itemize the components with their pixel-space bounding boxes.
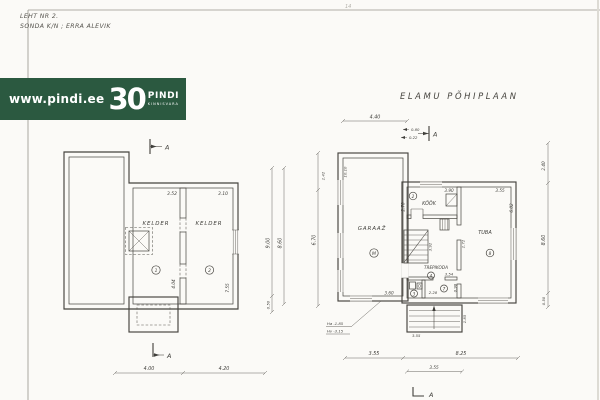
dim-label: 2.40 xyxy=(541,161,546,171)
dim-label: 1.72 xyxy=(461,239,466,248)
level-label: Ha -1.85 xyxy=(327,321,344,326)
main-right-dimline: 2.40 8.60 0.50 xyxy=(541,141,550,309)
room-label: KÖÖK xyxy=(422,200,437,207)
banner-brand-sub: KINNISVARA xyxy=(148,103,179,107)
sheet-note-1: LEHT NR 2. xyxy=(20,13,59,20)
garage-door-opening xyxy=(402,263,409,278)
room-number: 7 xyxy=(443,286,446,291)
section-label: A xyxy=(428,391,433,399)
dim-label: 3.92 xyxy=(428,242,433,251)
dim-label: 3.55 xyxy=(429,365,439,370)
dim-label: 4.04 xyxy=(171,279,176,289)
room-label: KELDER xyxy=(195,221,222,227)
dim-label: 7.55 xyxy=(225,283,230,293)
vertical-dim-chains: 9.00 0.50 8.60 6.70 1.42 xyxy=(266,151,326,314)
room-label: KELDER xyxy=(142,221,169,227)
chimney xyxy=(126,228,153,255)
boiler-icon xyxy=(440,219,449,230)
main-floor-plan: GARAAŽ M KÖÖK 2 TUBA 8 TREPIKODA A 3 7 3… xyxy=(326,115,550,400)
basement-bottom-dimline: 4.00 4.20 xyxy=(113,366,267,375)
sheet-corner-mark: 14 xyxy=(345,4,351,10)
dim-label: 8.60 xyxy=(541,235,547,246)
sheet-note-2: SONDA K/N ; ERRA ALEVIK xyxy=(20,23,111,30)
basement-plan: KELDER KELDER 1 2 3.52 3.10 4.04 7.55 4.… xyxy=(64,139,267,375)
dim-label: 6.70 xyxy=(312,235,318,246)
section-marker-main-bottom: A xyxy=(413,387,433,399)
dim-label: 0.22 xyxy=(409,135,418,140)
dim-label: 0.50 xyxy=(541,296,546,305)
section-label: A xyxy=(164,144,169,152)
dim-label: 4.00 xyxy=(144,366,155,372)
pindi-watermark-banner: www.pindi.ee 30 PINDI KINNISVARA xyxy=(0,78,186,120)
section-label: A xyxy=(166,352,171,360)
basement-window xyxy=(232,230,239,254)
dim-label: 3.54 xyxy=(445,272,454,277)
level-annotation: Ha -1.85 Hv -3.15 xyxy=(326,301,381,334)
wc-fixtures xyxy=(410,282,423,289)
main-top-dimline: 4.40 0.80 0.22 xyxy=(341,115,420,141)
dim-label: 3.10 xyxy=(218,191,228,197)
dim-label: 10.10 xyxy=(343,166,348,177)
section-marker-basement-top: A xyxy=(150,139,169,154)
basement-porch xyxy=(129,297,178,332)
dim-label: 2.70 xyxy=(401,202,406,212)
banner-brand: PINDI xyxy=(148,92,179,101)
dim-label: 4.20 xyxy=(219,366,230,372)
dim-label: 3.55 xyxy=(369,351,380,357)
dim-label: 3.90 xyxy=(444,188,454,193)
banner-url: www.pindi.ee xyxy=(9,92,104,106)
room-number: 3 xyxy=(413,291,416,296)
dim-label: 1.85 xyxy=(462,314,467,323)
section-marker-main-top: A xyxy=(418,126,437,141)
room-number: 2 xyxy=(208,268,211,274)
floorplan-sheet: LEHT NR 2. SONDA K/N ; ERRA ALEVIK 14 EL… xyxy=(0,0,600,400)
dim-label: 4.40 xyxy=(370,115,381,121)
dim-label: 8.60 xyxy=(278,238,284,249)
dim-label: 6.02 xyxy=(509,203,514,213)
section-marker-basement-bottom: A xyxy=(153,343,171,360)
dim-label: 0.50 xyxy=(266,300,271,309)
stove-icon xyxy=(446,194,457,206)
room-label: TUBA xyxy=(478,230,492,236)
room-number: M xyxy=(372,251,376,257)
dim-label: 9.00 xyxy=(266,238,272,249)
sheet-frame xyxy=(28,0,600,400)
room-number: 1 xyxy=(155,268,158,274)
page-title: ELAMU PÕHIPLAAN xyxy=(400,90,519,101)
dim-label: 0.80 xyxy=(411,127,420,132)
banner-30-logo: 30 xyxy=(108,85,144,114)
dim-label: 3.55 xyxy=(495,188,505,193)
room-number: 8 xyxy=(489,251,492,256)
room-label: GARAAŽ xyxy=(358,224,387,232)
dim-label: 1.42 xyxy=(321,171,326,180)
banner-brand-block: PINDI KINNISVARA xyxy=(148,92,179,106)
room-number: A xyxy=(429,273,433,278)
dim-label: 8.25 xyxy=(456,351,467,357)
windows xyxy=(337,180,516,303)
entry-stairs xyxy=(407,305,462,332)
room-label: TREPIKODA xyxy=(424,265,448,270)
main-bottom-dimlines: 3.55 8.25 3.55 xyxy=(343,351,520,374)
room-number: 2 xyxy=(412,194,415,199)
dim-label: 3.60 xyxy=(384,291,394,296)
dim-label: 0.98 xyxy=(453,283,458,292)
dim-label: 2.28 xyxy=(429,290,438,295)
dim-label: 3.52 xyxy=(167,191,177,197)
section-label: A xyxy=(432,131,437,139)
level-label: Hv -3.15 xyxy=(327,329,344,334)
basement-walls xyxy=(64,152,238,309)
dim-label: 3.55 xyxy=(412,333,421,338)
